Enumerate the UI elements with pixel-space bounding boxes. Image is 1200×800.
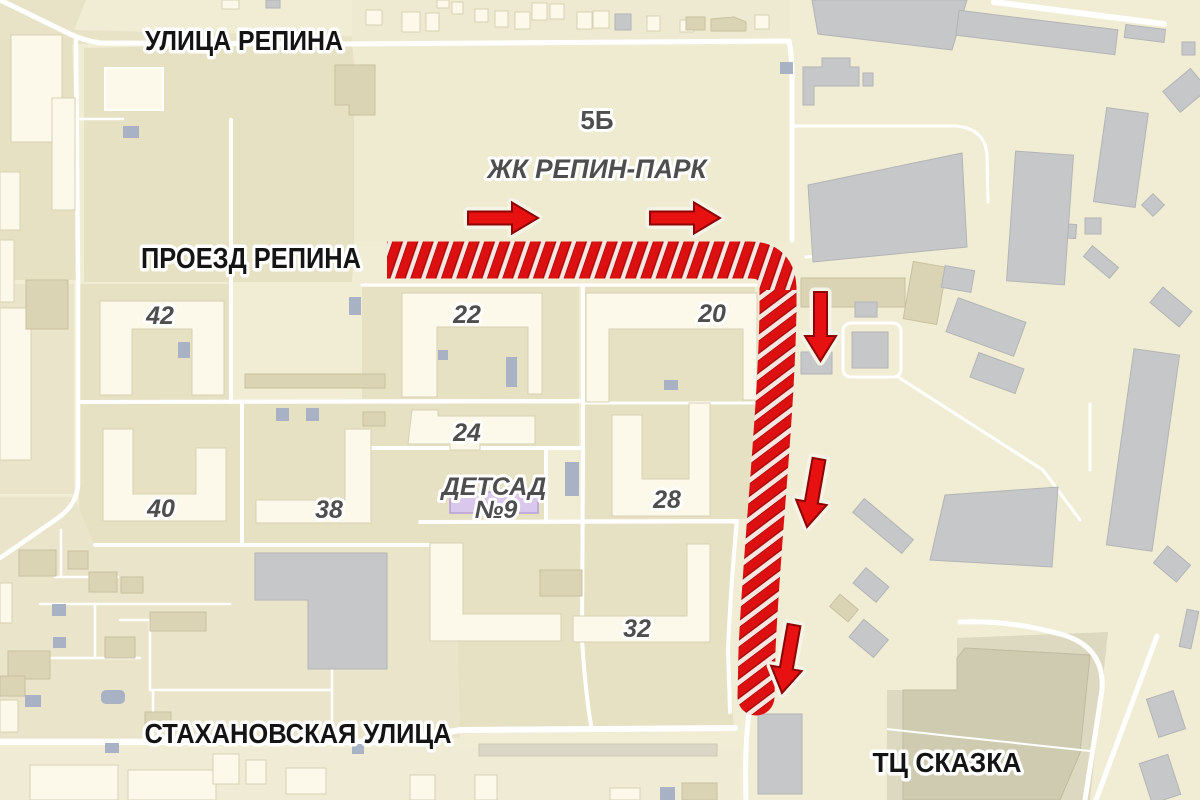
svg-text:38: 38	[315, 496, 343, 524]
svg-text:ПРОЕЗД РЕПИНА: ПРОЕЗД РЕПИНА	[141, 243, 361, 275]
svg-text:22: 22	[452, 301, 481, 329]
svg-text:5Б: 5Б	[580, 105, 613, 135]
svg-text:ТЦ СКАЗКА: ТЦ СКАЗКА	[873, 747, 1022, 778]
svg-text:№9: №9	[475, 496, 518, 524]
svg-text:20: 20	[697, 300, 726, 328]
svg-text:СТАХАНОВСКАЯ УЛИЦА: СТАХАНОВСКАЯ УЛИЦА	[145, 718, 452, 749]
svg-text:24: 24	[452, 419, 481, 447]
svg-text:40: 40	[146, 495, 175, 523]
svg-text:28: 28	[652, 486, 681, 514]
svg-text:32: 32	[623, 615, 651, 643]
svg-text:42: 42	[145, 302, 174, 330]
svg-text:ЖК РЕПИН-ПАРК: ЖК РЕПИН-ПАРК	[486, 154, 709, 184]
svg-text:УЛИЦА РЕПИНА: УЛИЦА РЕПИНА	[145, 25, 343, 56]
